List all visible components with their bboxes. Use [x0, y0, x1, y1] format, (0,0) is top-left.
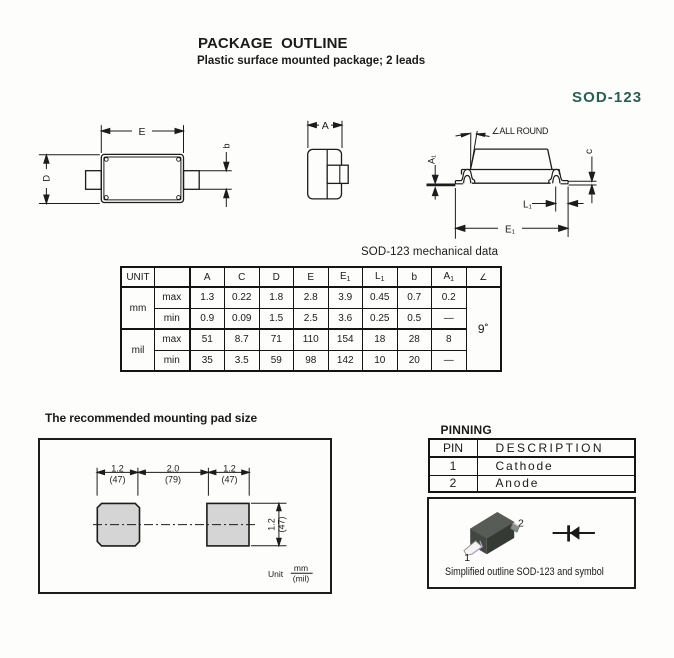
svg-text:2: 2 — [518, 518, 524, 530]
svg-text:1: 1 — [464, 552, 470, 564]
